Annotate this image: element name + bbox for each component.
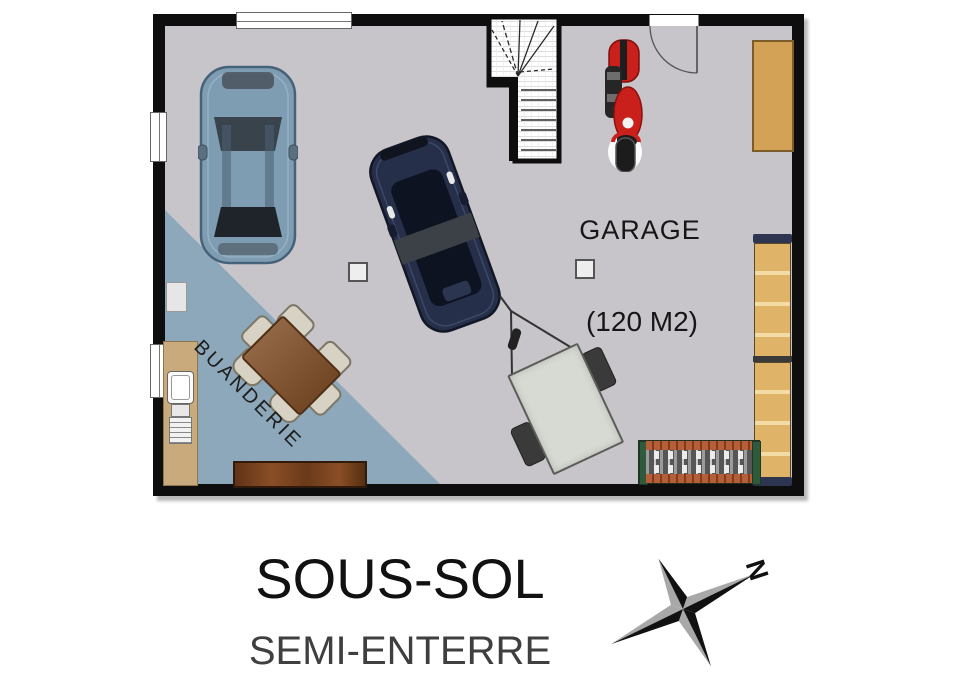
page-title: SOUS-SOL — [180, 546, 620, 611]
appliance-vent — [169, 417, 192, 444]
faucet-fixture — [171, 404, 190, 417]
garage-label: GARAGE — [560, 215, 720, 246]
support-post — [575, 259, 595, 279]
north-label: N — [740, 556, 775, 584]
blue-car — [198, 65, 298, 265]
page-subtitle: SEMI-ENTERRE — [180, 629, 620, 674]
window-left-upper — [150, 112, 167, 162]
sink — [167, 371, 194, 404]
support-post — [348, 262, 368, 282]
compass-rose: N — [605, 543, 775, 679]
jockey-wheel — [507, 327, 522, 351]
side-mirror — [198, 145, 207, 160]
staircase — [486, 14, 562, 164]
motorcycle-wheel — [616, 138, 635, 172]
wall-bench — [233, 461, 367, 488]
side-mirror — [289, 145, 298, 160]
garage-area-label: (120 M2) — [552, 306, 732, 338]
wood-board — [752, 40, 794, 152]
entry-door-swing — [645, 12, 705, 82]
window-top — [236, 12, 352, 29]
motorcycle — [597, 38, 649, 172]
storage-rack — [638, 440, 760, 484]
floor-plan-page: GARAGE (120 M2) BUANDERIE SOUS-SOL SEMI-… — [0, 0, 960, 679]
wall-niche — [166, 282, 187, 312]
